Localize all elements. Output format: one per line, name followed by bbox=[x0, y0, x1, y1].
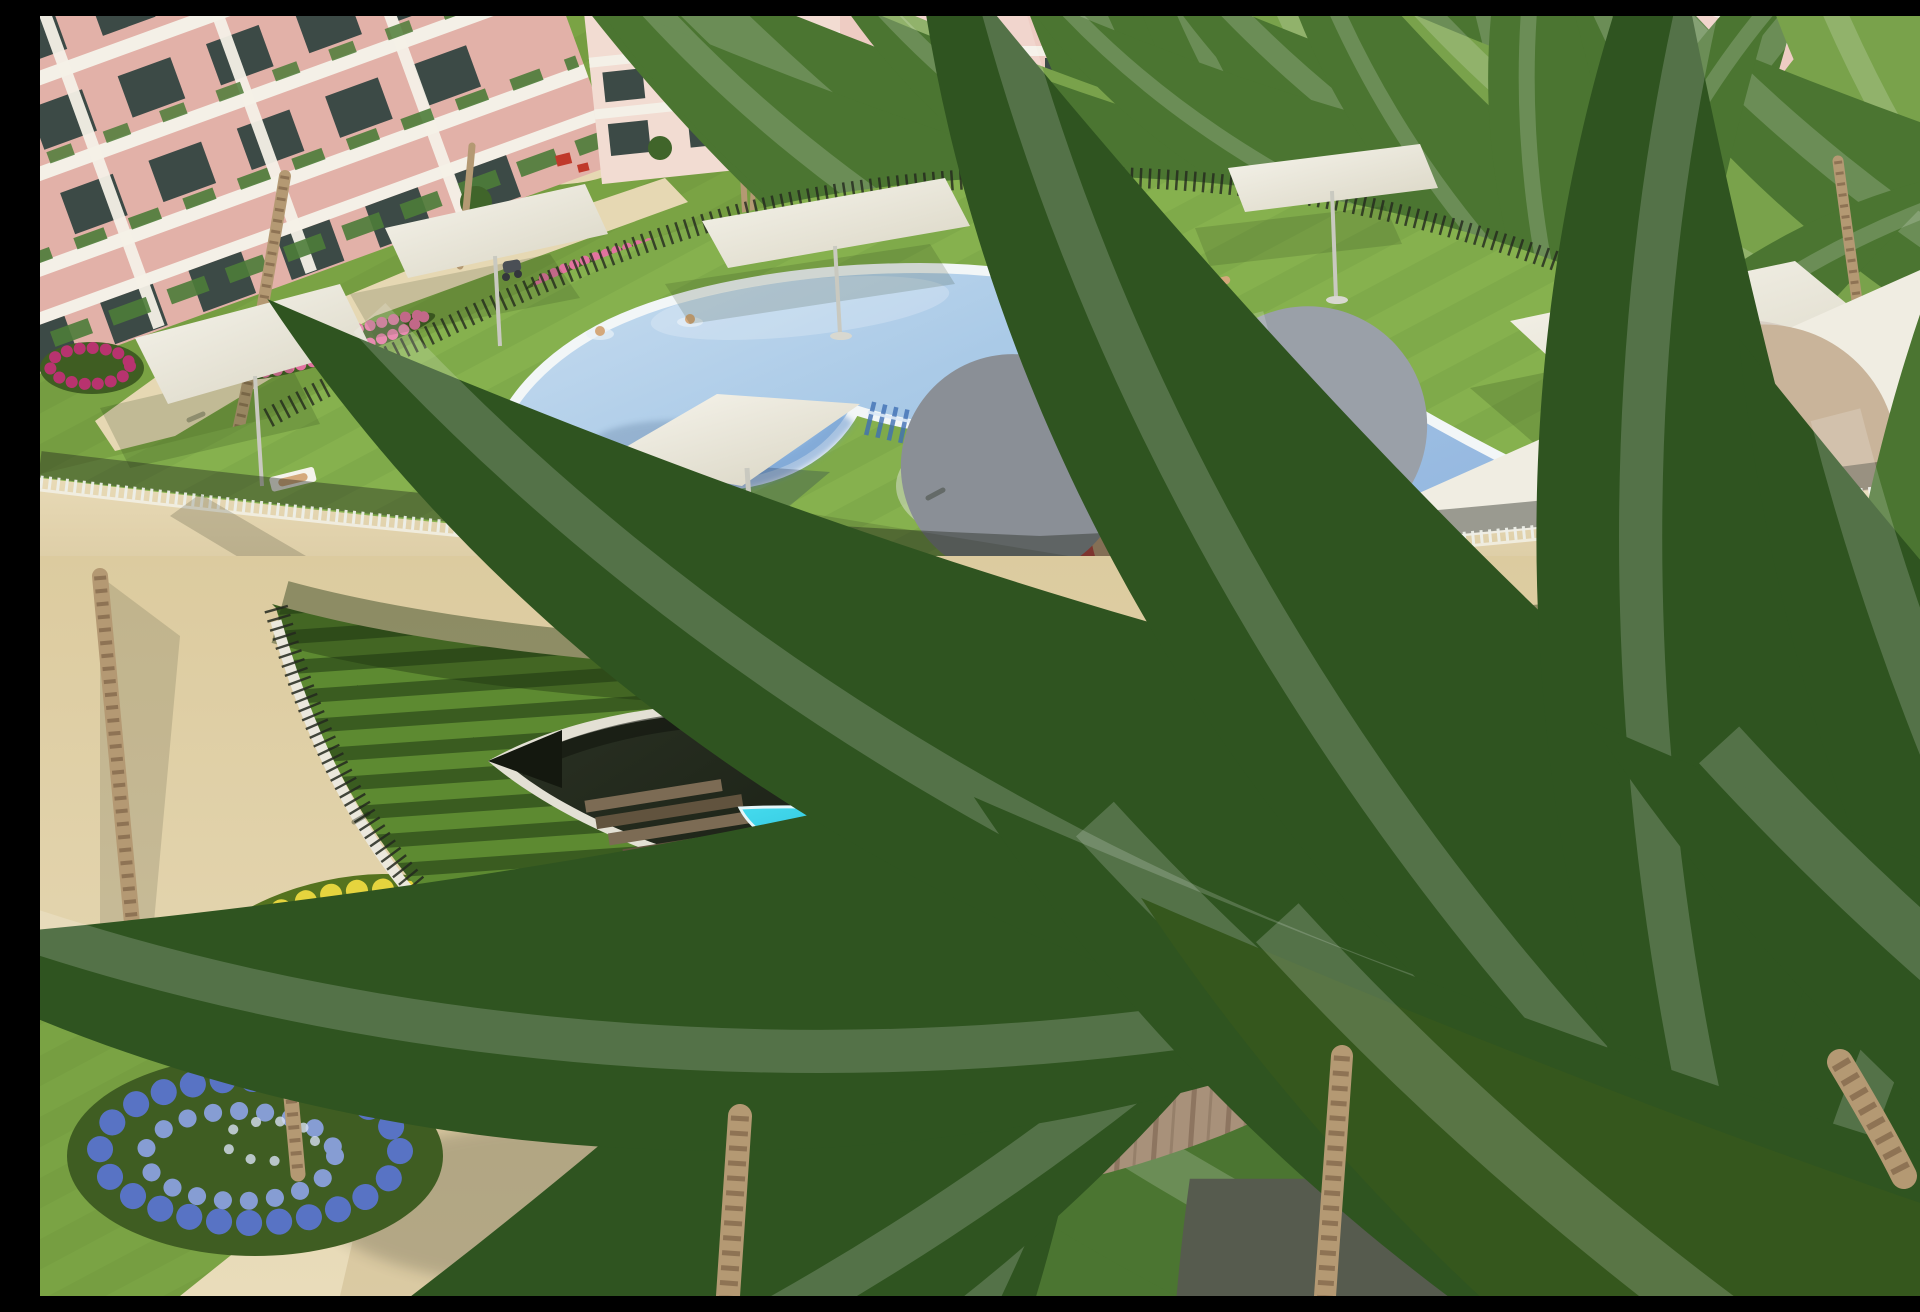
render-aerial-resort bbox=[40, 16, 1920, 1296]
scene-canvas bbox=[40, 16, 1920, 1296]
